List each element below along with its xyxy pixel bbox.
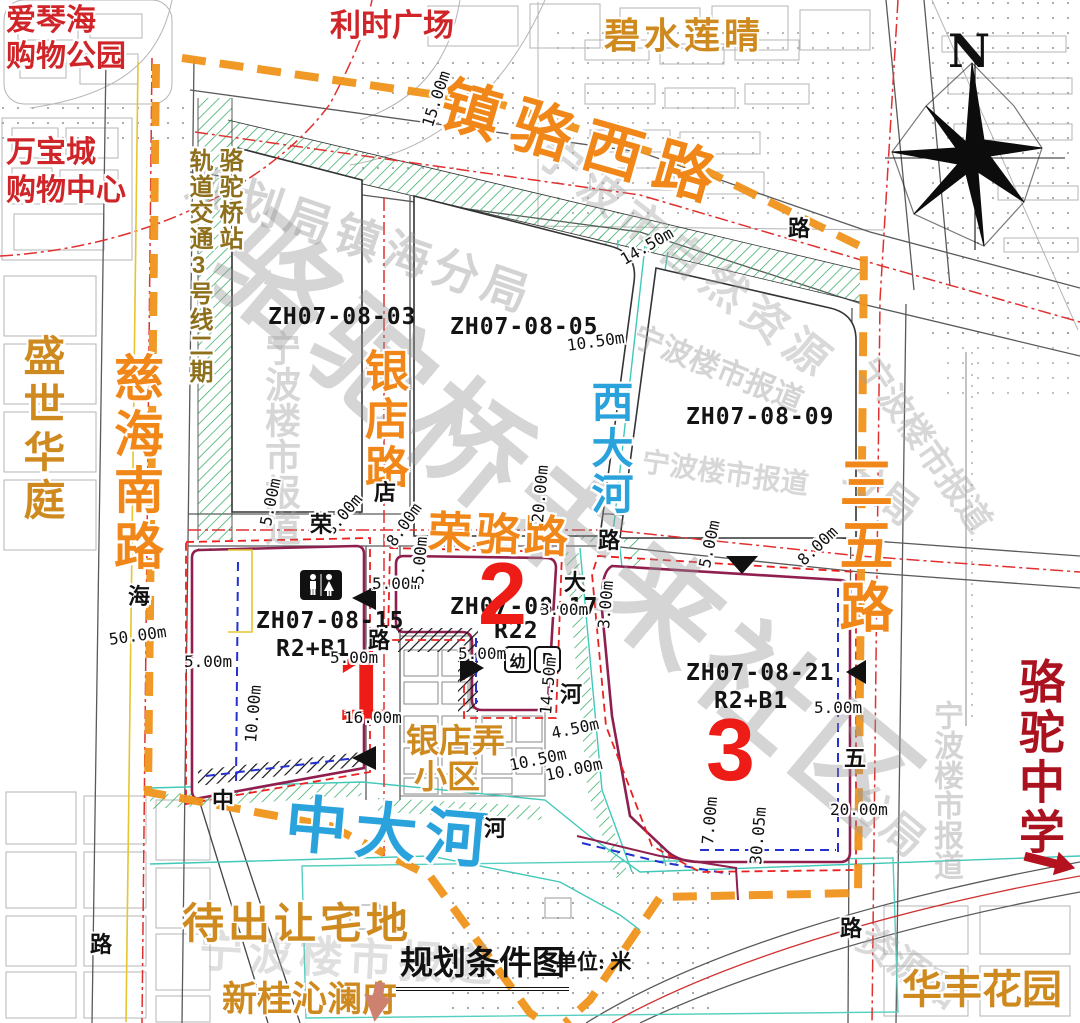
parking-icon: P	[534, 646, 561, 673]
restroom-icon	[300, 570, 342, 600]
parcel-zh07-08-09	[620, 268, 856, 538]
kindergarten-icon: 幼	[504, 646, 531, 673]
xingui-pointer-arrow-icon	[359, 980, 395, 1023]
parcel-zh07-08-03	[232, 148, 362, 512]
map-unit-label: 单位: 米	[556, 946, 631, 976]
map-title: 规划条件图	[396, 936, 569, 991]
map-linework	[0, 0, 1080, 1023]
compass-north-label: N	[948, 24, 990, 78]
parcel-zh07-08-21	[602, 566, 850, 862]
parcel-zh07-08-05	[414, 196, 635, 536]
planning-map: 骆驼桥未来社区 规划局镇海分局 宁波市自然资源 宁波楼市报道 宁波楼市报道 宁波…	[0, 0, 1080, 1023]
